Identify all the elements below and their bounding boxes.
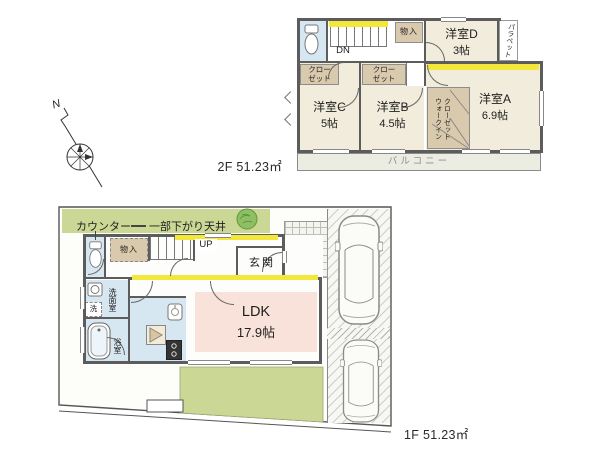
tree-icon <box>235 207 259 231</box>
window-marker <box>80 327 85 353</box>
leader-line <box>131 225 146 227</box>
window-marker <box>250 360 292 365</box>
ldk-size: 17.9帖 <box>237 322 275 341</box>
wall-segment <box>148 235 150 261</box>
compass-north-label: N <box>51 98 62 112</box>
car-icon-2 <box>340 337 382 425</box>
wall-segment <box>319 277 322 364</box>
highlight-strip <box>132 275 318 280</box>
stairs-up-label: UP <box>195 239 217 251</box>
kitchen-counter-icon <box>146 325 166 345</box>
washroom-label: 洗面室 <box>105 282 118 318</box>
ldk-name: LDK <box>242 304 270 320</box>
wall-segment <box>282 234 285 251</box>
sink-icon <box>167 303 183 321</box>
storage-1f: 物入 <box>110 238 148 262</box>
entrance-label: 玄関 <box>240 252 284 274</box>
washer-box: 洗 <box>85 302 102 317</box>
ldk-label: LDK 17.9帖 <box>195 300 317 344</box>
step-box <box>147 400 183 412</box>
ceiling-note: 一部下がり天井 <box>149 218 226 234</box>
compass-icon: N <box>50 93 108 193</box>
floor-plan-image: バルコニー パラペット クロー ゼット クロー ゼット 物入 ウォークイン クロ… <box>0 0 600 449</box>
window-marker <box>80 287 85 309</box>
garden-bottom <box>180 367 323 422</box>
bathroom-label-text: 浴室 <box>112 338 121 354</box>
wall-segment <box>236 246 283 248</box>
wall-segment <box>104 235 106 278</box>
wall-segment <box>83 277 130 279</box>
wall-segment <box>236 246 238 277</box>
stove-icon <box>166 340 182 360</box>
floor-area-1f: 1F 51.23㎡ <box>404 424 499 443</box>
window-marker <box>188 360 230 365</box>
washbasin-icon <box>87 282 103 297</box>
car-icon-1 <box>335 212 383 328</box>
stairs-1f <box>150 237 194 260</box>
plan-1f: 物入 洗 <box>0 0 600 449</box>
leader-line <box>95 231 96 240</box>
bathroom-label: 浴室 <box>111 332 122 360</box>
counter-note: カウンター <box>76 218 131 234</box>
wall-segment <box>128 277 130 363</box>
washroom-label-text: 洗面室 <box>107 288 116 312</box>
